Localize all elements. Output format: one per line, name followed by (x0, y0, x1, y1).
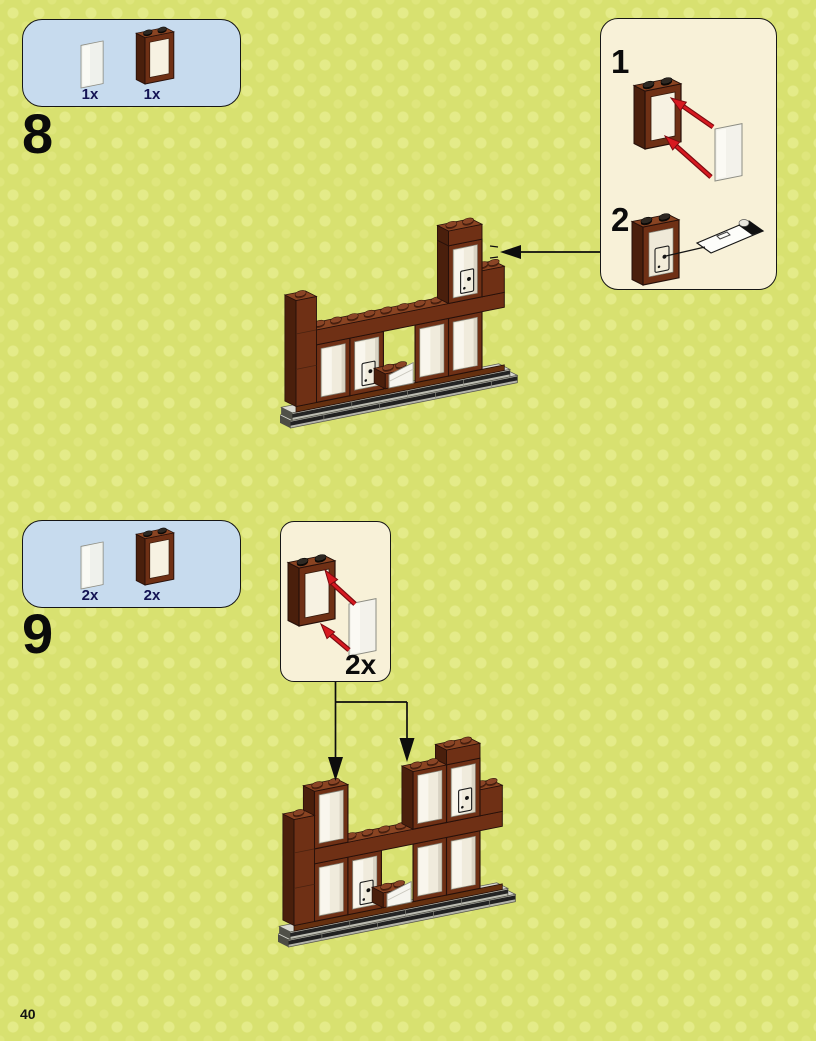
red-insert-arrow (321, 624, 349, 650)
ground-window-2-sticker (348, 850, 381, 914)
red-insert-arrow (665, 136, 711, 177)
step9-parts: 2x 2x (23, 521, 240, 606)
part-qty: 1x (144, 86, 161, 103)
part-qty: 2x (82, 587, 99, 604)
substep-2-label: 2 (611, 201, 629, 238)
step9-inset-drawing: 2x (281, 522, 389, 680)
step8-inset: 1 2 (600, 18, 777, 290)
left-pillar (283, 807, 315, 928)
substep-1-label: 1 (611, 43, 629, 80)
lego-instruction-page: { "page": { "number": "40" }, "steps": [… (0, 0, 816, 1041)
ground-window-2-sticker (350, 331, 383, 395)
step8-parts: 1x 1x (23, 20, 240, 105)
step9-parts-box: 2x 2x (22, 520, 241, 608)
window-frame-piece (136, 25, 174, 86)
window-frame-piece (288, 552, 335, 628)
left-pillar (285, 288, 317, 409)
step8-inset-drawing: 1 2 (601, 19, 775, 288)
upper-sticker-window (437, 215, 482, 305)
part-qty: 2x (144, 587, 161, 604)
step9-inset: 2x (280, 521, 391, 682)
ground-window-3 (413, 837, 446, 901)
part-qty: 1x (82, 86, 99, 103)
assembled-window (632, 211, 679, 287)
sticker-sheet (666, 220, 763, 257)
step8-parts-box: 1x 1x (22, 19, 241, 107)
window-pane-piece (81, 542, 103, 589)
new-upper-window-b (402, 756, 447, 832)
ground-window-1 (316, 338, 349, 402)
inset-count-label: 2x (345, 649, 377, 680)
page-number: 40 (20, 1006, 36, 1022)
step9-wall-assembly (278, 688, 528, 968)
ground-window-4 (447, 831, 480, 895)
ground-window-1 (314, 857, 347, 921)
window-pane-piece (715, 124, 742, 181)
ground-window-3 (415, 318, 448, 382)
ground-window-4 (449, 312, 482, 376)
step8-number: 8 (22, 106, 51, 162)
window-pane-piece (349, 599, 376, 656)
window-pane-piece (81, 41, 103, 88)
window-frame-piece (136, 526, 174, 587)
step9-number: 9 (22, 606, 51, 662)
step8-wall-assembly (280, 175, 530, 447)
